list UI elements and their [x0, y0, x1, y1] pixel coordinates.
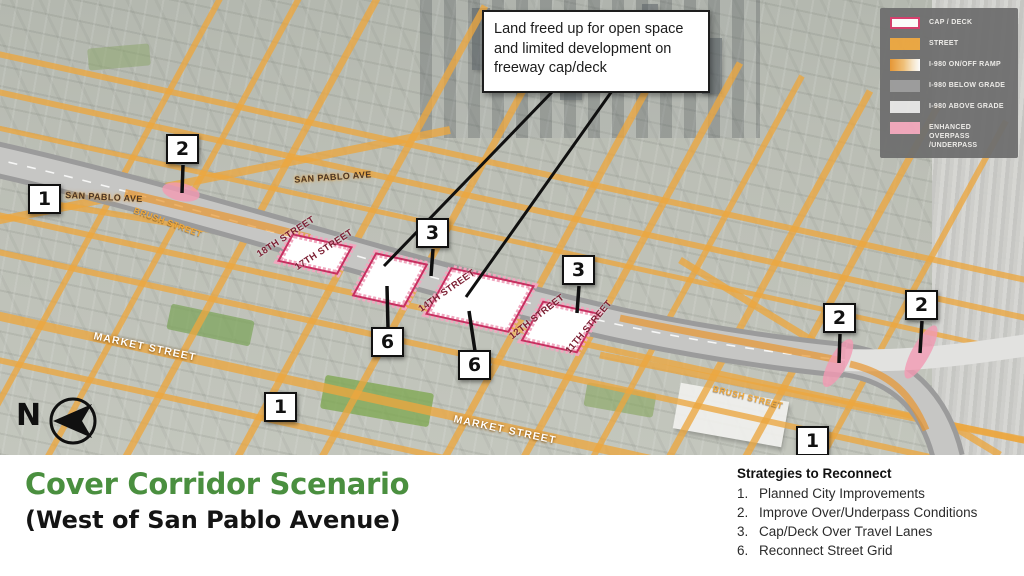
- strategy-marker-3: 3: [416, 218, 449, 248]
- strategy-number: 6.: [737, 541, 759, 560]
- marker-stem: [387, 286, 388, 328]
- strategy-marker-6: 6: [458, 350, 491, 380]
- strategy-number: 2.: [737, 503, 759, 522]
- marker-stem: [431, 249, 433, 276]
- strategy-item: 6.Reconnect Street Grid: [737, 541, 1017, 560]
- legend-label: STREET: [929, 38, 958, 49]
- ramp-swatch-icon: [890, 59, 920, 71]
- legend-label: I-980 ABOVE GRADE: [929, 101, 1004, 112]
- legend-label: I-980 ON/OFF RAMP: [929, 59, 1001, 70]
- above-grade-swatch-icon: [890, 101, 920, 113]
- strategy-marker-1: 1: [796, 426, 829, 455]
- slide: SAN PABLO AVESAN PABLO AVEBRUSH STREET18…: [0, 0, 1024, 576]
- legend-item: I-980 ABOVE GRADE: [890, 101, 1010, 113]
- strategy-marker-2: 2: [166, 134, 199, 164]
- slide-footer: Cover Corridor Scenario (West of San Pab…: [0, 455, 1024, 576]
- callout-text: Land freed up for open space and limited…: [494, 21, 683, 76]
- marker-stem: [182, 165, 183, 193]
- cap-deck-swatch-icon: [890, 17, 920, 29]
- strategy-number: 1.: [737, 484, 759, 503]
- legend-label: ENHANCED OVERPASS /UNDERPASS: [929, 122, 1010, 150]
- strategies-panel: Strategies to Reconnect 1.Planned City I…: [737, 466, 1017, 561]
- legend-item: I-980 BELOW GRADE: [890, 80, 1010, 92]
- strategy-item: 3.Cap/Deck Over Travel Lanes: [737, 522, 1017, 541]
- legend-item: STREET: [890, 38, 1010, 50]
- strategy-marker-1: 1: [28, 184, 61, 214]
- strategy-item: 1.Planned City Improvements: [737, 484, 1017, 503]
- legend-label: I-980 BELOW GRADE: [929, 80, 1005, 91]
- strategies-list: 1.Planned City Improvements2.Improve Ove…: [737, 484, 1017, 561]
- strategy-marker-2: 2: [823, 303, 856, 333]
- strategy-item: 2.Improve Over/Underpass Conditions: [737, 503, 1017, 522]
- legend-item: ENHANCED OVERPASS /UNDERPASS: [890, 122, 1010, 150]
- map-legend: CAP / DECKSTREETI-980 ON/OFF RAMPI-980 B…: [880, 8, 1018, 158]
- strategy-marker-6: 6: [371, 327, 404, 357]
- slide-title: Cover Corridor Scenario: [25, 467, 409, 501]
- street-swatch-icon: [890, 38, 920, 50]
- enhanced-swatch-icon: [890, 122, 920, 134]
- strategy-marker-1: 1: [264, 392, 297, 422]
- strategy-marker-2: 2: [905, 290, 938, 320]
- slide-subtitle: (West of San Pablo Avenue): [25, 506, 401, 534]
- strategies-title: Strategies to Reconnect: [737, 466, 1017, 481]
- aerial-map: SAN PABLO AVESAN PABLO AVEBRUSH STREET18…: [0, 0, 1024, 455]
- strategy-text: Cap/Deck Over Travel Lanes: [759, 522, 932, 541]
- callout-box: Land freed up for open space and limited…: [482, 10, 710, 93]
- legend-item: CAP / DECK: [890, 17, 1010, 29]
- legend-rows: CAP / DECKSTREETI-980 ON/OFF RAMPI-980 B…: [890, 17, 1010, 150]
- marker-stem: [577, 286, 579, 313]
- legend-label: CAP / DECK: [929, 17, 972, 28]
- north-label: N: [16, 398, 41, 433]
- strategy-text: Reconnect Street Grid: [759, 541, 893, 560]
- strategy-text: Improve Over/Underpass Conditions: [759, 503, 977, 522]
- below-grade-swatch-icon: [890, 80, 920, 92]
- marker-stem: [920, 321, 922, 353]
- legend-item: I-980 ON/OFF RAMP: [890, 59, 1010, 71]
- marker-stem: [839, 334, 840, 363]
- strategy-number: 3.: [737, 522, 759, 541]
- strategy-text: Planned City Improvements: [759, 484, 925, 503]
- strategy-marker-3: 3: [562, 255, 595, 285]
